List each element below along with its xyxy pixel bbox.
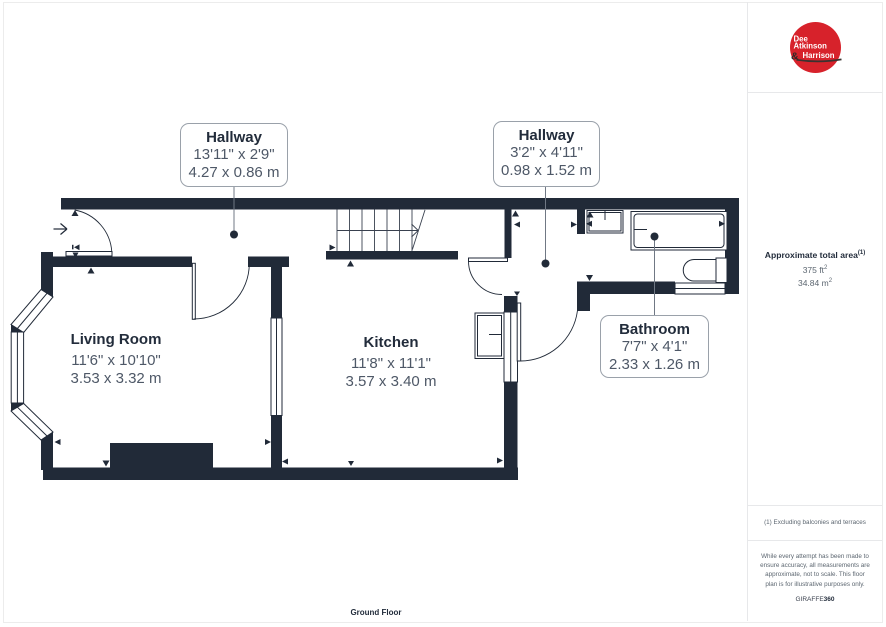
svg-text:Harrison: Harrison [803,51,835,60]
svg-text:&: & [791,50,799,62]
